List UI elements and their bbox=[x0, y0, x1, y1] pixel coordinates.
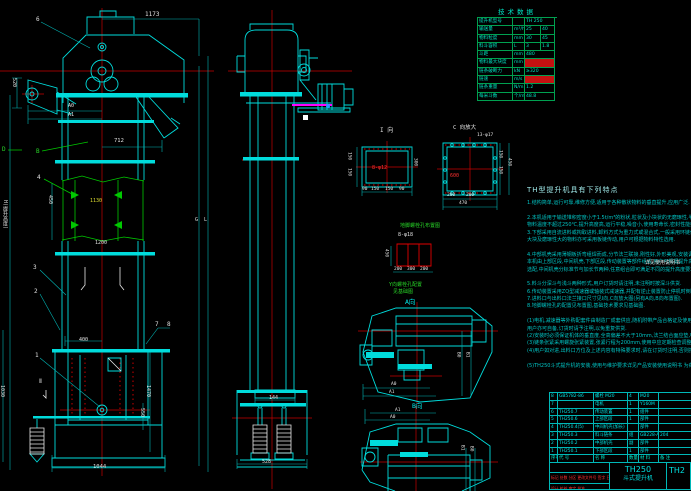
dim-label: 200 bbox=[466, 194, 474, 199]
dim-label: 6 bbox=[36, 17, 40, 23]
dim-label: 2 bbox=[34, 289, 38, 295]
centerlines bbox=[0, 8, 503, 491]
tech-table-cell: ≥320 bbox=[524, 68, 555, 76]
tech-table-cell: 链速 bbox=[477, 76, 512, 84]
tech-table-cell: 48.8 bbox=[524, 93, 555, 101]
dim-label: 200 bbox=[447, 194, 455, 199]
bom-cell: 中间机壳(加长) bbox=[593, 424, 627, 432]
dim-label: 1130 bbox=[90, 199, 102, 204]
white-details bbox=[30, 267, 291, 454]
note-line: 6.传动装置采用ZQ型减速器或轴装式减速器,并配有逆止装置防止停机时倒转. bbox=[527, 289, 691, 296]
dim-label: A1 bbox=[389, 391, 394, 396]
dim-label: 150 bbox=[371, 188, 379, 193]
dim-label: C 向放大 bbox=[453, 126, 476, 132]
dim-label: 8-φ18 bbox=[398, 233, 413, 238]
note-line: 选配,中间机壳分标准节与加长节两种,任意组合即可满足不同的提升高度要求. bbox=[527, 267, 691, 274]
dim-label: 详见使用说明书 bbox=[645, 261, 680, 266]
tech-table-cell: mm bbox=[512, 59, 524, 67]
dim-label: 1044 bbox=[93, 465, 106, 471]
dim-label: 1 bbox=[35, 353, 39, 359]
dim-label: 90 bbox=[362, 188, 367, 193]
dim-label: B向 bbox=[412, 403, 422, 410]
bom-cell: 7 bbox=[549, 401, 557, 409]
bom-cell: 副 bbox=[627, 440, 638, 448]
bom-cell: 6 bbox=[549, 409, 557, 417]
dim-label: 8-φ12 bbox=[372, 166, 387, 171]
dim-label: 528 bbox=[262, 460, 271, 465]
dim-label: A0 bbox=[68, 104, 74, 109]
bom-cell: 204 bbox=[658, 432, 691, 440]
tech-table-cell: 每米斗数 bbox=[477, 93, 512, 101]
dim-label: B1 bbox=[459, 445, 464, 450]
tech-table-cell: 45 bbox=[540, 35, 555, 43]
tech-data-table: 技术数据 提升机型号TH 250输送量m³/h2540物料粒度mm3045料斗容… bbox=[477, 8, 557, 101]
tech-table-cell: 1.8 bbox=[540, 43, 555, 51]
tech-table-cell: 提升机型号 bbox=[477, 18, 512, 26]
dim-label: 300 bbox=[407, 268, 415, 273]
dim-label: 13-φ17 bbox=[477, 134, 493, 139]
note-line: 3.下部采用自流进料或掏取进料,卸料方式为重力式或混合式,一般采用环链传动,对于 bbox=[527, 230, 691, 237]
bom-row: 4TH250.4(5)中间机壳(加长)部件 bbox=[549, 424, 691, 432]
tech-table-row: 物料最大块度mm bbox=[477, 59, 557, 67]
green-section bbox=[8, 142, 144, 241]
bom-cell: TH250.3 bbox=[557, 432, 593, 440]
dim-label: 1173 bbox=[145, 12, 159, 18]
bom-cell: GB5782-86 bbox=[557, 393, 593, 401]
tech-table-cell: TH 250 bbox=[524, 18, 555, 26]
bom-cell: 1 bbox=[549, 448, 557, 456]
dim-label: 520 bbox=[11, 78, 16, 87]
bolt-marks bbox=[55, 145, 495, 420]
note-line: 8.地脚螺栓孔的配置见布置图,基础技术要求见基础图. bbox=[527, 303, 691, 310]
bom-cell: TH250.7 bbox=[557, 409, 593, 417]
tech-table-cell: 物料粒度 bbox=[477, 35, 512, 43]
dim-label: 3 bbox=[33, 265, 37, 271]
bom-cell: 3 bbox=[549, 432, 557, 440]
bom-cell bbox=[557, 401, 593, 409]
bom-cell: 部件 bbox=[638, 440, 658, 448]
bom-cell bbox=[658, 440, 691, 448]
bom-cell: Y160M bbox=[638, 401, 658, 409]
notes-block: TH型提升机具有下列特点 1.结构简单,运行可靠,维修方便,适用于各种散状物料的… bbox=[527, 185, 691, 393]
bom-cell: 2 bbox=[549, 440, 557, 448]
tech-table-cell: 斗距 bbox=[477, 51, 512, 59]
dim-label: 1470 bbox=[145, 385, 150, 397]
signature-row-blank bbox=[550, 463, 609, 473]
dim-label: 200 bbox=[394, 268, 402, 273]
bom-cell bbox=[627, 424, 638, 432]
tech-table-cell: L bbox=[512, 43, 524, 51]
tech-table-rows: 提升机型号TH 250输送量m³/h2540物料粒度mm3045料斗容积L31.… bbox=[477, 17, 557, 101]
note-line: (1)电机,减速器等外购配套件由制造厂成套供应,随机附带产品合格证及使用说明书, bbox=[527, 318, 691, 325]
dim-label: 1200 bbox=[95, 241, 107, 246]
tech-table-cell: 个/m bbox=[512, 93, 524, 101]
dim-label: A1 bbox=[68, 113, 74, 118]
bom-cell: 1 bbox=[627, 416, 638, 424]
tech-table-cell: 链条重量 bbox=[477, 84, 512, 92]
bom-cell: 中部机壳 bbox=[593, 440, 627, 448]
dim-label: 450 bbox=[47, 195, 52, 204]
dim-label: 150 bbox=[346, 152, 351, 160]
tech-table-cell: 30 bbox=[524, 35, 540, 43]
bom-cell: TH250.6 bbox=[557, 416, 593, 424]
dim-label: 400 bbox=[79, 338, 88, 343]
bom-table: 8GB5782-86螺栓 M204M207电机1Y160M6TH250.7传动装… bbox=[549, 392, 691, 463]
drawing-number-box: TH2 bbox=[667, 463, 690, 489]
drawing-model: TH250 bbox=[610, 464, 666, 475]
bom-cell: 4 bbox=[627, 393, 638, 401]
bom-cell: TH250.4(5) bbox=[557, 424, 593, 432]
tech-table-cell bbox=[524, 59, 555, 67]
dim-label: 470 bbox=[459, 202, 467, 207]
bom-row: 5TH250.6上部区段1部件 bbox=[549, 416, 691, 424]
bom-cell: 部件 bbox=[638, 448, 658, 456]
bom-row: 3TH250.3料斗链条组GB228-A204 bbox=[549, 432, 691, 440]
bom-row: 7电机1Y160M bbox=[549, 401, 691, 409]
dim-label: A向 bbox=[405, 299, 415, 306]
bom-cell: 电机 bbox=[593, 401, 627, 409]
dim-label: A0 bbox=[390, 416, 395, 421]
bom-cell: 1 bbox=[627, 448, 638, 456]
bom-row: 6TH250.7传动装置1组件 bbox=[549, 409, 691, 417]
tech-table-cell: m/s bbox=[512, 76, 524, 84]
tech-table-cell: 3 bbox=[524, 43, 540, 51]
tech-table-row: 输送量m³/h2540 bbox=[477, 26, 557, 34]
dim-label: 90 bbox=[399, 188, 404, 193]
tech-table-cell: m³/h bbox=[512, 26, 524, 34]
bom-cell bbox=[658, 424, 691, 432]
belt-guard-highlight bbox=[292, 104, 332, 106]
dim-label: 地脚螺栓孔布置图 bbox=[400, 224, 440, 229]
tech-table-cell: 1.2 bbox=[524, 84, 555, 92]
dim-label: 1030 bbox=[0, 385, 4, 397]
dim-label: Ⅱ bbox=[39, 379, 42, 385]
tech-table-row: 链条破断力kN≥320 bbox=[477, 68, 557, 76]
blue-marker-dot bbox=[326, 104, 330, 108]
tech-table-cell: 料斗容积 bbox=[477, 43, 512, 51]
tech-table-cell: 480 bbox=[524, 51, 555, 59]
bom-row: 8GB5782-86螺栓 M204M20 bbox=[549, 393, 691, 401]
signature-row-approve: 设计 校核 审定 批准 bbox=[550, 484, 609, 489]
dim-label: 450 bbox=[383, 249, 388, 257]
dim-label: D bbox=[2, 147, 6, 153]
tech-table-row: 链条重量N/m1.2 bbox=[477, 84, 557, 92]
dim-label: 712 bbox=[114, 139, 124, 145]
note-line: 大块及磨琢性大的物料亦可采用板链传动,用户可根据物料特性选用. bbox=[527, 237, 691, 244]
tech-table-cell: mm bbox=[512, 35, 524, 43]
tech-table-cell: kN bbox=[512, 68, 524, 76]
dim-label: 150 bbox=[385, 188, 393, 193]
dim-label: I 向 bbox=[380, 128, 393, 134]
dim-label: 600 bbox=[450, 174, 459, 179]
note-line: (5)TH250斗式提升机的安装,使用与维护要求详见产品安装使用说明书 为荷. bbox=[527, 363, 691, 370]
dim-label: 144 bbox=[269, 396, 278, 401]
note-line: (4)用户如对进,出料口方位及上述内容有特殊要求时,请在订货时注明,否则按本图制… bbox=[527, 348, 691, 355]
bom-cell: 料斗链条 bbox=[593, 432, 627, 440]
tech-table-cell bbox=[512, 18, 524, 26]
dim-label: 150 bbox=[346, 168, 351, 176]
dim-label: 450 bbox=[506, 158, 511, 166]
tech-table-row: 链速m/s bbox=[477, 76, 557, 84]
tech-table-row: 料斗容积L31.8 bbox=[477, 43, 557, 51]
bom-cell bbox=[658, 416, 691, 424]
tech-table-cell bbox=[524, 76, 555, 84]
dim-label: 200 bbox=[420, 268, 428, 273]
dim-label: Y向螺栓孔配置 bbox=[389, 283, 422, 288]
bom-cell: 部件 bbox=[638, 416, 658, 424]
tech-table-cell: 链条破断力 bbox=[477, 68, 512, 76]
dim-label: 150 bbox=[497, 166, 502, 174]
bom-cell: GB228-A bbox=[638, 432, 658, 440]
tech-table-cell: 40 bbox=[540, 26, 555, 34]
dim-label: G bbox=[195, 218, 198, 223]
bom-cell: M20 bbox=[638, 393, 658, 401]
bom-cell: 螺栓 M20 bbox=[593, 393, 627, 401]
bom-cell: 部件 bbox=[638, 424, 658, 432]
signature-row-marks: 标记 处数 分区 更改文件号 签字 日期 bbox=[550, 473, 609, 483]
bom-cell: TH250.1 bbox=[557, 448, 593, 456]
dim-label: B1 bbox=[464, 352, 469, 357]
title-block: 标记 处数 分区 更改文件号 签字 日期 设计 校核 审定 批准 TH250 斗… bbox=[549, 462, 691, 490]
bom-cell: 组 bbox=[627, 432, 638, 440]
bom-row: 1TH250.1下部区段1部件 bbox=[549, 448, 691, 456]
main-linework bbox=[26, 11, 497, 491]
tech-table-row: 提升机型号TH 250 bbox=[477, 18, 557, 26]
dim-label: H(提升高度) bbox=[2, 200, 7, 229]
dim-label: 8 bbox=[167, 322, 171, 328]
note-line: 1.结构简单,运行可靠,维修方便,适用于各种散状物料的垂直提升,应用广泛. bbox=[527, 200, 691, 207]
bom-cell: 8 bbox=[549, 393, 557, 401]
bom-cell: 5 bbox=[549, 416, 557, 424]
dim-label: B0 bbox=[455, 352, 460, 357]
dim-label: 150 bbox=[497, 150, 502, 158]
bom-cell: 1 bbox=[627, 401, 638, 409]
dim-label: 300 bbox=[412, 158, 417, 166]
tech-table-cell: 25 bbox=[524, 26, 540, 34]
dim-label: 见基础图 bbox=[393, 290, 413, 295]
tech-table-row: 物料粒度mm3045 bbox=[477, 35, 557, 43]
bom-cell bbox=[658, 409, 691, 417]
cad-drawing-canvas[interactable]: 11736520A0A1712DB44501130H(提升高度)GL120032… bbox=[0, 0, 691, 491]
dim-label: B bbox=[36, 149, 40, 155]
bom-cell: 组件 bbox=[638, 409, 658, 417]
bom-cell bbox=[658, 448, 691, 456]
tech-table-cell: N/m bbox=[512, 84, 524, 92]
note-line: 用户亦可自备,订货时请予注明,以免重复供货. bbox=[527, 326, 691, 333]
tech-table-row: 斗距mm480 bbox=[477, 51, 557, 59]
note-line: 5.料斗分深斗与浅斗两种形式,用户订货时请注明,未注明时按深斗供货. bbox=[527, 281, 691, 288]
drawing-product-name: 斗式提升机 bbox=[610, 475, 666, 483]
tech-table-row: 每米斗数个/m48.8 bbox=[477, 93, 557, 101]
note-line bbox=[527, 207, 691, 214]
dim-label: 550 bbox=[139, 408, 144, 417]
notes-title: TH型提升机具有下列特点 bbox=[527, 185, 691, 195]
tech-table-title: 技术数据 bbox=[477, 8, 557, 17]
bom-cell: 上部区段 bbox=[593, 416, 627, 424]
note-line: (3)链条张紧采用螺旋张紧装置,张紧行程为200mm,使用中应定期检查调整. bbox=[527, 340, 691, 347]
bom-cell: 1 bbox=[627, 409, 638, 417]
note-lines: 1.结构简单,运行可靠,维修方便,适用于各种散状物料的垂直提升,应用广泛.2.本… bbox=[527, 200, 691, 370]
bom-cell bbox=[658, 401, 691, 409]
bom-cell: 4 bbox=[549, 424, 557, 432]
tech-table-cell: 输送量 bbox=[477, 26, 512, 34]
tech-table-cell: mm bbox=[512, 51, 524, 59]
note-line bbox=[527, 355, 691, 362]
bom-cell: TH250.2 bbox=[557, 440, 593, 448]
dim-label: 4 bbox=[37, 175, 41, 181]
dim-label: A1 bbox=[395, 409, 400, 414]
bom-cell: 下部区段 bbox=[593, 448, 627, 456]
dim-label: B0 bbox=[468, 446, 473, 451]
tech-table-cell: 物料最大块度 bbox=[477, 59, 512, 67]
dim-label: L bbox=[204, 218, 207, 223]
bom-cell bbox=[658, 393, 691, 401]
bom-row: 2TH250.2中部机壳副部件 bbox=[549, 440, 691, 448]
dim-label: A0 bbox=[391, 383, 396, 388]
signature-grid: 标记 处数 分区 更改文件号 签字 日期 设计 校核 审定 批准 bbox=[550, 463, 610, 489]
title-box: TH250 斗式提升机 bbox=[610, 463, 667, 489]
note-line: 物料温度不超过250℃,提升高度高,运行平稳,噪音小,使用寿命长,密封性能好. bbox=[527, 222, 691, 229]
dim-label: 7 bbox=[155, 322, 159, 328]
white-marker-square bbox=[303, 115, 308, 120]
bom-cell: 传动装置 bbox=[593, 409, 627, 417]
note-line bbox=[527, 244, 691, 251]
